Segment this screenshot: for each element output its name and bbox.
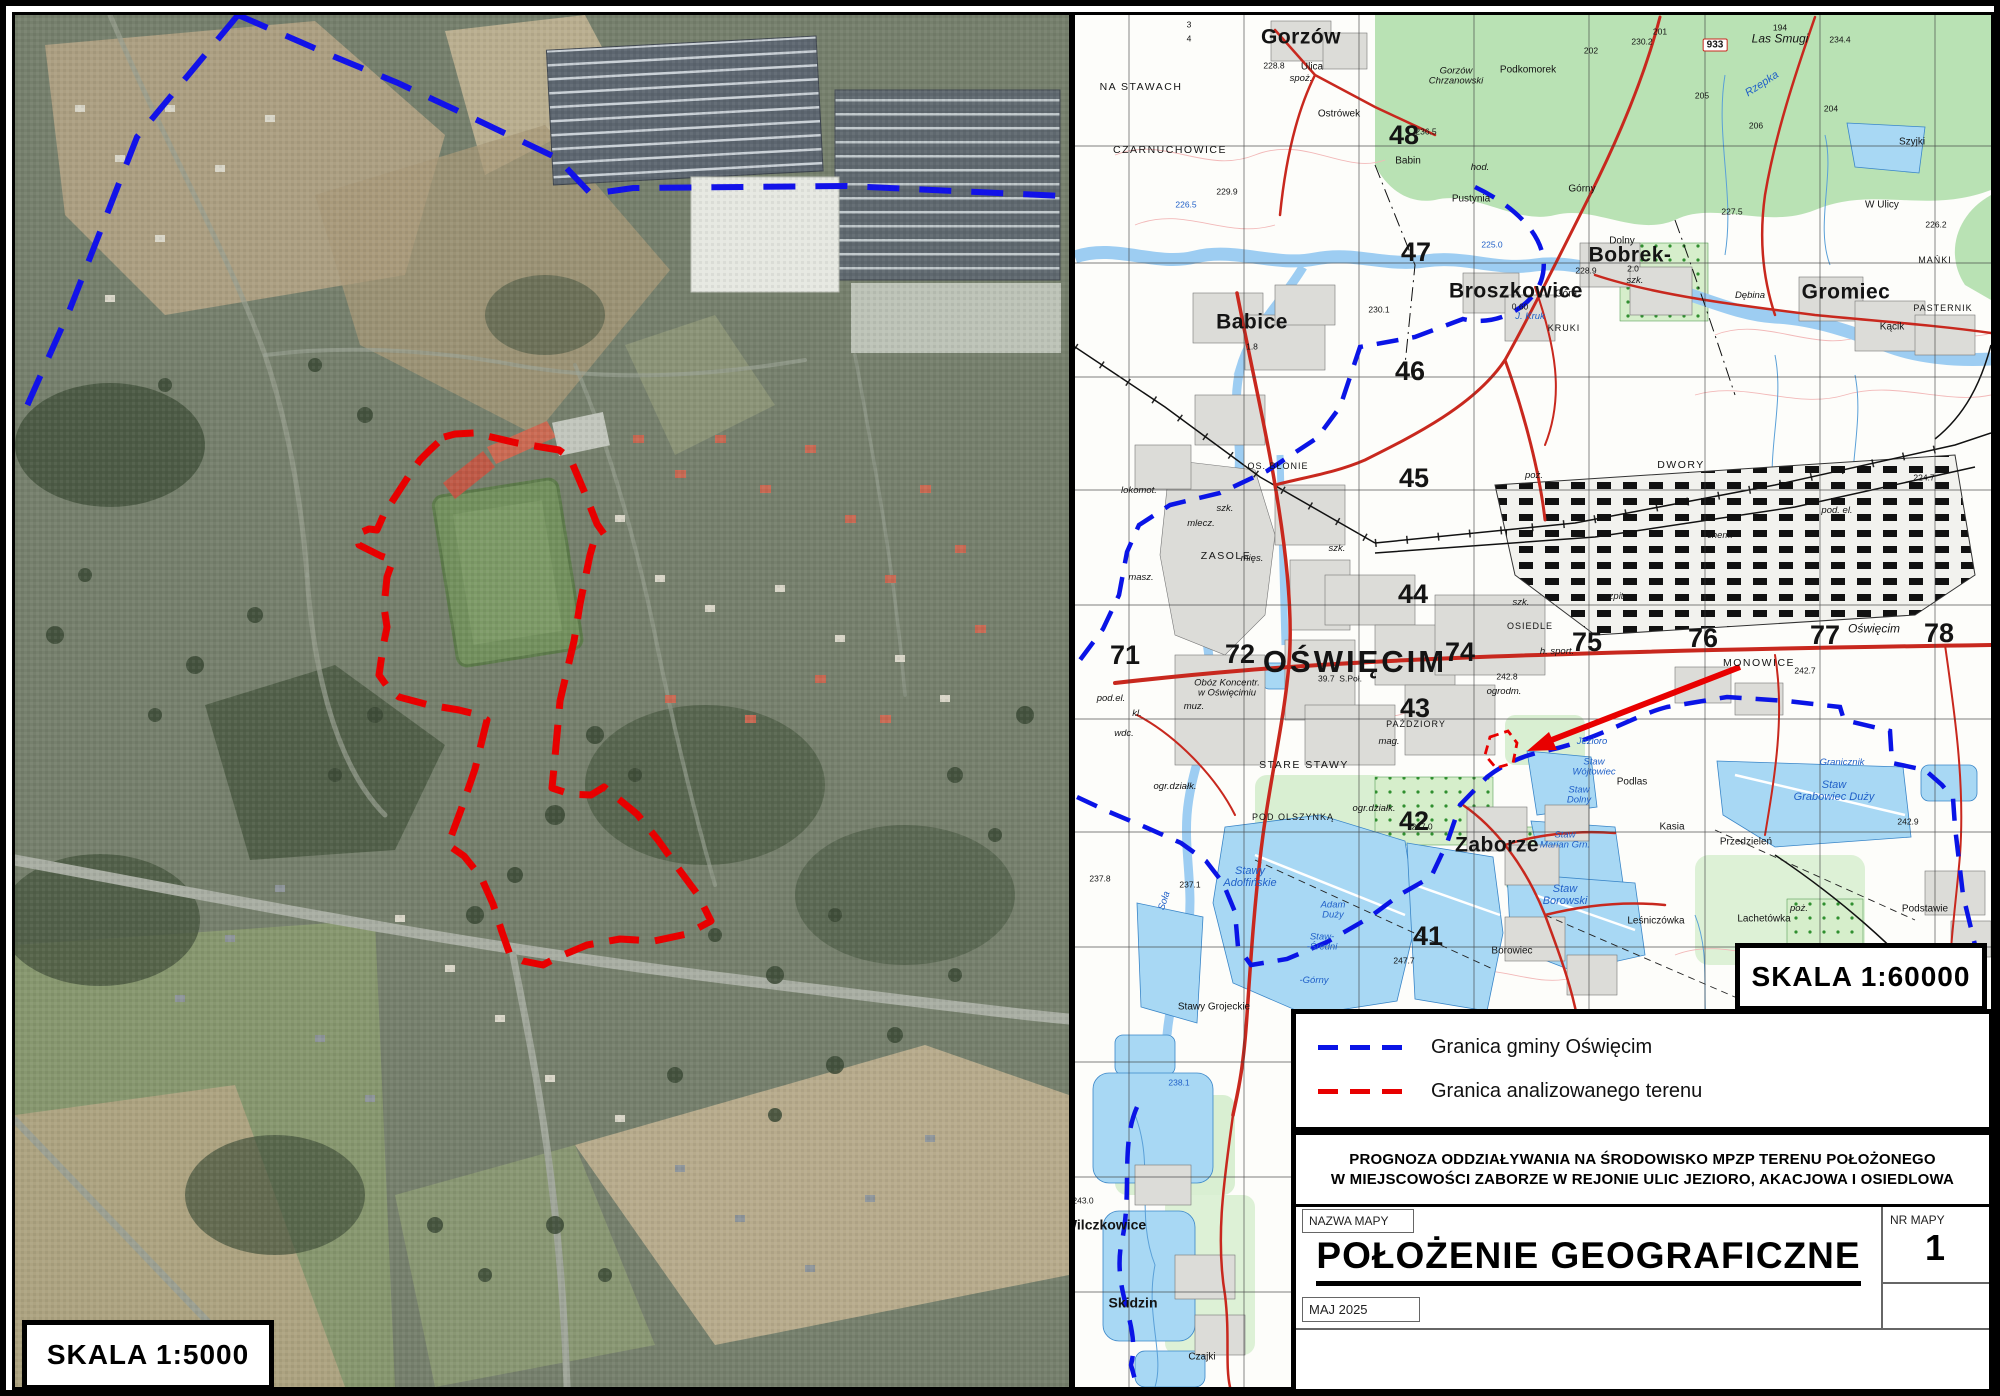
aerial-scale-box: SKALA 1:5000 (22, 1320, 274, 1390)
map-label: Podkomorek (1500, 65, 1556, 76)
map-label: Staw Marian Grn. (1540, 831, 1590, 852)
map-label: masz. (1128, 573, 1153, 583)
map-label: szk. (1513, 598, 1530, 608)
title-block-divider (1881, 1282, 1989, 1284)
map-label: 201 (1653, 27, 1667, 36)
map-label: MONOWICE (1723, 658, 1795, 670)
map-label: mlecz. (1187, 519, 1214, 529)
map-label: 238.1 (1168, 1078, 1189, 1087)
map-label: muz. (1184, 702, 1205, 712)
aerial-photo-panel (12, 12, 1072, 1390)
map-label: PAŹDZIORY (1386, 720, 1446, 730)
map-label: PASTERNIK (1913, 304, 1972, 314)
map-label: Jezioro (1577, 737, 1608, 747)
map-label: 242.7 (1794, 666, 1815, 675)
map-label: Obóz Koncentr. w Oświęcimiu (1194, 679, 1260, 700)
map-label: Staw Borowski (1543, 883, 1588, 907)
map-label: Ostrówek (1318, 109, 1360, 120)
project-title-line2: W MIEJSCOWOŚCI ZABORZE W REJONIE ULIC JE… (1331, 1171, 1954, 1188)
map-label: ogrodm. (1487, 687, 1522, 697)
aerial-photo (15, 15, 1069, 1387)
map-label: poż. (1790, 904, 1808, 914)
map-label: Babice (1216, 310, 1288, 333)
map-label: 237.1 (1179, 880, 1200, 889)
map-label: J. Kruk (1515, 312, 1545, 322)
map-label: 46 (1395, 357, 1425, 387)
map-label: 41 (1413, 922, 1443, 952)
map-date: MAJ 2025 (1302, 1297, 1420, 1322)
map-label: 1.8 (1246, 342, 1258, 351)
map-label: Przedzieleń (1720, 837, 1772, 848)
map-label: Adam Duży (1321, 901, 1346, 922)
map-label: szk. (1627, 276, 1644, 286)
project-title: PROGNOZA ODDZIAŁYWANIA NA ŚRODOWISKO MPZ… (1296, 1135, 1989, 1207)
map-label: 247.0 (1411, 822, 1432, 831)
map-label: 247.7 (1393, 956, 1414, 965)
map-label: szk. (1329, 544, 1346, 554)
legend-item-label: Granica gminy Oświęcim (1431, 1036, 1652, 1059)
map-label: 230.2 (1631, 37, 1652, 46)
map-label: Ulica (1301, 62, 1323, 73)
map-label: MAŃKI (1918, 256, 1952, 266)
map-label: 228.9 (1575, 266, 1596, 275)
map-label: pod. el. (1821, 506, 1852, 516)
map-name: POŁOŻENIE GEOGRAFICZNE (1296, 1235, 1881, 1286)
map-label: Lachetówka (1737, 914, 1790, 925)
map-name-field-label: NAZWA MAPY (1302, 1209, 1414, 1233)
analyzed-area-boundary-legend-symbol (1318, 1089, 1413, 1094)
map-label: Kącik (1880, 322, 1904, 333)
map-label: Skidzin (1108, 1295, 1157, 1310)
map-label: OS. BŁONIE (1247, 462, 1308, 472)
map-label: Rzepka (1743, 69, 1781, 99)
map-label: 77 (1810, 621, 1840, 651)
map-label: spoż. (1290, 74, 1313, 84)
map-label: 206 (1749, 121, 1763, 130)
map-label: Staw Dolny (1567, 786, 1591, 807)
map-label: Góra (1555, 289, 1577, 300)
aerial-scale-label: SKALA 1:5000 (47, 1339, 249, 1371)
map-label: 227.5 (1721, 207, 1742, 216)
map-label: h. sport. (1540, 647, 1574, 657)
map-label: 242.8 (1496, 672, 1517, 681)
map-label: Zaborze (1455, 833, 1539, 856)
map-label: 205 (1695, 91, 1709, 100)
map-label: 75 (1572, 628, 1602, 658)
map-label: Leśniczówka (1627, 916, 1684, 927)
map-label: Wilczkowice (1072, 1217, 1146, 1232)
map-label: 933 (1703, 39, 1728, 52)
map-label: Granicznik (1820, 758, 1865, 768)
map-label: -Górny (1299, 976, 1328, 986)
map-label: Czajki (1188, 1352, 1215, 1363)
map-label: STARE STAWY (1259, 760, 1349, 772)
map-label: Soła (1157, 890, 1173, 911)
map-label: Podstawie (1902, 904, 1948, 915)
map-label: 47 (1401, 238, 1431, 268)
title-block-divider (1296, 1328, 1989, 1330)
map-label: DWORY (1657, 460, 1705, 472)
legend-box: Granica gminy Oświęcim Granica analizowa… (1291, 1009, 1994, 1132)
map-label: KRUKI (1548, 324, 1581, 334)
map-label: Górny (1568, 184, 1595, 195)
map-label: Gorzów Chrzanowski (1429, 67, 1483, 88)
map-label: 237.8 (1089, 874, 1110, 883)
project-title-line1: PROGNOZA ODDZIAŁYWANIA NA ŚRODOWISKO MPZ… (1349, 1151, 1936, 1168)
map-label: 71 (1110, 641, 1140, 671)
map-label: POD OLSZYNKĄ (1252, 813, 1334, 823)
map-label: Szyjki (1899, 137, 1925, 148)
map-label: chem. (1707, 531, 1733, 541)
legend-item-analyzed-area: Granica analizowanego terenu (1296, 1076, 1989, 1106)
map-label: 4 (1187, 34, 1192, 43)
map-label: lokomot. (1121, 486, 1157, 496)
map-label: Oświęcim (1848, 622, 1900, 635)
map-label: 224.7 (1913, 473, 1934, 482)
map-label: 72 (1225, 640, 1255, 670)
map-label: poż. (1525, 471, 1543, 481)
map-label: Staw- -Średni (1307, 933, 1338, 954)
map-label: W Ulicy (1865, 200, 1899, 211)
map-label: 44 (1398, 580, 1428, 610)
map-label: mięs. (1241, 554, 1264, 564)
map-label: Babin (1395, 156, 1421, 167)
map-label: OSIEDLE (1507, 622, 1553, 632)
map-label: 230.1 (1368, 305, 1389, 314)
map-label: 225.0 (1481, 240, 1502, 249)
map-label: Staw Grabowiec Duży (1794, 779, 1875, 803)
map-label: Gorzów (1261, 25, 1341, 48)
map-label: 226.2 (1925, 220, 1946, 229)
map-number-field-label: NR MAPY (1890, 1213, 1945, 1227)
title-block: PROGNOZA ODDZIAŁYWANIA NA ŚRODOWISKO MPZ… (1291, 1130, 1994, 1394)
map-label: mag. (1378, 737, 1399, 747)
topo-scale-label: SKALA 1:60000 (1752, 961, 1971, 993)
legend-item-label: Granica analizowanego terenu (1431, 1080, 1702, 1103)
map-label: Dolny (1609, 236, 1635, 247)
map-label: 202 (1584, 46, 1598, 55)
map-label: Stawy Grojeckie (1178, 1002, 1250, 1013)
map-label: CZARNUCHOWICE (1113, 145, 1227, 157)
map-label: Stawy Adolfińskie (1223, 865, 1276, 889)
map-label: Las Smugi (1752, 32, 1809, 45)
map-label: kl. (1132, 709, 1142, 719)
map-label: 229.9 (1216, 187, 1237, 196)
gmina-boundary-legend-symbol (1318, 1045, 1413, 1050)
map-label: Pustynia (1452, 194, 1490, 205)
map-label: 194 (1773, 23, 1787, 32)
map-label: 243.0 (1072, 1196, 1093, 1205)
topo-scale-box: SKALA 1:60000 (1735, 943, 1987, 1011)
map-label: Dębina (1735, 291, 1765, 301)
map-label: 39.7 S.Poł. (1318, 674, 1362, 683)
map-label: 242.9 (1897, 817, 1918, 826)
legend-item-gmina: Granica gminy Oświęcim (1296, 1032, 1989, 1062)
map-label: szk. (1217, 504, 1234, 514)
map-label: ogr.działk. (1154, 782, 1197, 792)
map-label: 226.5 (1175, 200, 1196, 209)
map-label: 3 (1187, 20, 1192, 29)
map-label: 78 (1924, 619, 1954, 649)
map-label: NA STAWACH (1100, 82, 1183, 94)
map-label: 74 (1445, 638, 1475, 668)
map-label: ogr.działk. (1353, 804, 1396, 814)
map-label: 76 (1688, 624, 1718, 654)
map-label: Podlas (1617, 777, 1648, 788)
map-label: Borowiec (1491, 946, 1532, 957)
map-number: 1 (1881, 1227, 1989, 1269)
map-label: 228.8 (1263, 61, 1284, 70)
map-label: 0.60 (1512, 302, 1529, 311)
map-label: Gromiec (1802, 280, 1891, 303)
map-label: wdc. (1114, 729, 1134, 739)
map-sheet-page: 484746454443424171727475767778OŚWIĘCIMBa… (0, 0, 2000, 1396)
map-label: 204 (1824, 104, 1838, 113)
map-label: 45 (1399, 464, 1429, 494)
map-label: 2.0 (1627, 264, 1639, 273)
map-label: Kasia (1659, 822, 1684, 833)
map-label: szpit. (1604, 592, 1626, 602)
map-label: 234.4 (1829, 35, 1850, 44)
map-label: Staw Wójtowiec (1572, 758, 1615, 779)
map-label: hod. (1471, 163, 1490, 173)
map-label: 236.5 (1415, 127, 1436, 136)
map-label: pod.el. (1097, 694, 1126, 704)
